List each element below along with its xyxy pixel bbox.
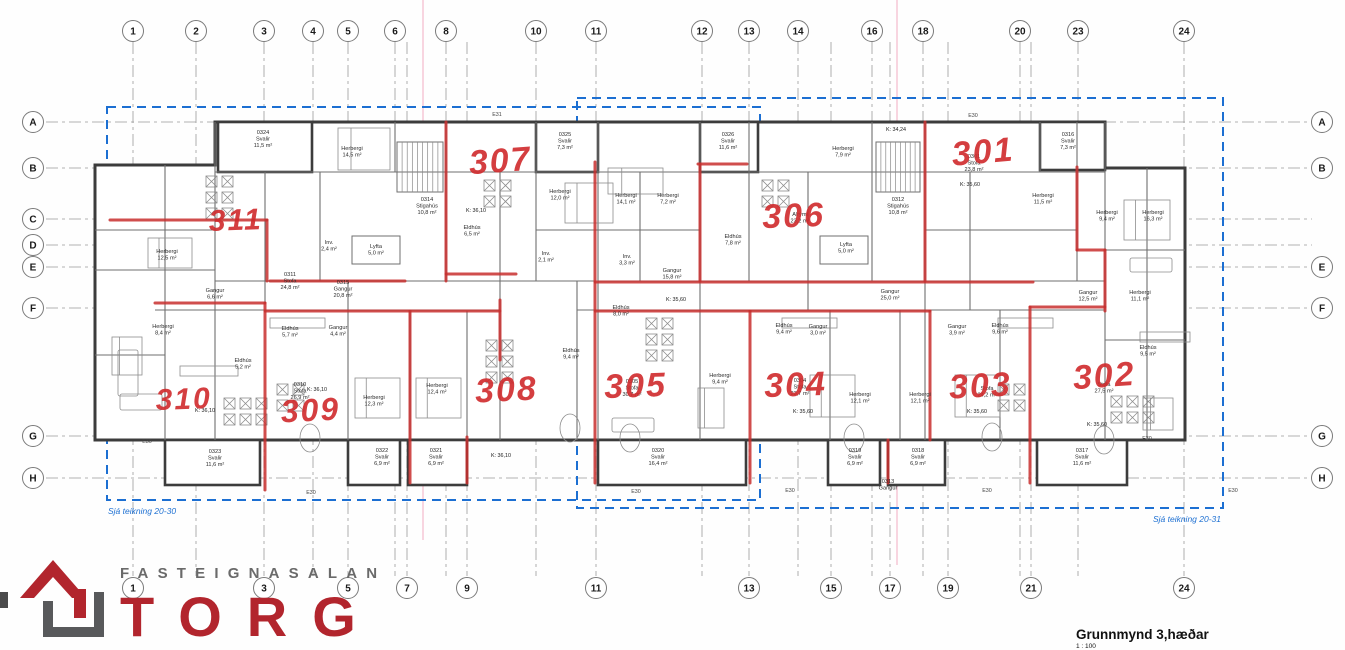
room-label: Eldhús6,5 m² xyxy=(463,225,480,237)
element-mark: E30 xyxy=(306,490,316,496)
grid-bubble-top-8: 8 xyxy=(443,26,449,37)
room-label: Herbergi8,4 m² xyxy=(152,324,173,336)
grid-bubble-bottom-9: 9 xyxy=(464,583,470,594)
grid-bubble-top-11: 11 xyxy=(591,26,602,37)
room-label: Herbergi12,3 m² xyxy=(363,395,384,407)
apartment-number-301: 301 xyxy=(950,130,1016,173)
grid-bubble-right-G: G xyxy=(1318,431,1326,442)
room-label: Eldhús9,4 m² xyxy=(775,323,792,335)
room-label: 0319Svalir6,9 m² xyxy=(847,448,863,467)
torg-logo: FASTEIGNASALAN TORG xyxy=(0,560,386,648)
apartment-number-310: 310 xyxy=(155,382,212,417)
grid-bubble-bottom-7: 7 xyxy=(404,583,410,594)
grid-bubble-top-24: 24 xyxy=(1178,26,1190,37)
grid-bubble-top-5: 5 xyxy=(345,26,351,37)
grid-bubble-bottom-19: 19 xyxy=(942,583,954,594)
grid-bubble-top-4: 4 xyxy=(310,26,316,37)
grid-bubble-right-E: E xyxy=(1319,262,1326,273)
level-mark: K: 35,60 xyxy=(967,409,987,415)
grid-bubble-left-E: E xyxy=(30,262,37,273)
logo-house-wall-red xyxy=(74,589,86,618)
balcony-bottom xyxy=(598,440,746,485)
grid-bubble-left-A: A xyxy=(29,117,36,128)
room-label: 0318Svalir6,9 m² xyxy=(910,448,926,467)
room-label: Eldhús9,5 m² xyxy=(1139,345,1156,357)
room-label: Gangur25,0 m² xyxy=(881,289,900,301)
grid-bubble-right-A: A xyxy=(1318,117,1325,128)
logo-text-torg: TORG xyxy=(120,585,381,648)
drawing-scale: 1 : 100 xyxy=(1076,643,1096,650)
element-mark: E30 xyxy=(631,489,641,495)
room-label: 0322Svalir6,9 m² xyxy=(374,448,390,467)
apartment-number-304: 304 xyxy=(764,365,828,405)
grid-bubble-top-13: 13 xyxy=(743,26,755,37)
grid-bubble-left-H: H xyxy=(29,473,36,484)
logo-house-base-icon xyxy=(43,592,104,637)
room-label: Gangur12,5 m² xyxy=(1079,290,1098,302)
room-label: Herbergi12,1 m² xyxy=(909,392,930,404)
room-label: Herbergi12,4 m² xyxy=(426,383,447,395)
grid-bubble-top-14: 14 xyxy=(792,26,804,37)
element-mark: E30 xyxy=(1142,436,1152,442)
grid-bubble-bottom-24: 24 xyxy=(1178,583,1190,594)
grid-bubble-bottom-15: 15 xyxy=(825,583,837,594)
room-label: Gangur3,9 m² xyxy=(948,324,967,336)
level-mark: K: 35,60 xyxy=(666,297,686,303)
floor-plan-page: 0324Svalir11,5 m²Herbergi14,5 m²0325Sval… xyxy=(0,0,1345,650)
logo-text-fasteignasalan: FASTEIGNASALAN xyxy=(120,565,386,582)
grid-bubble-top-3: 3 xyxy=(261,26,267,37)
element-mark: E30 xyxy=(968,113,978,119)
grid-bubble-right-B: B xyxy=(1318,163,1325,174)
level-mark: K: 35,60 xyxy=(793,409,813,415)
element-mark: E30 xyxy=(1228,488,1238,494)
room-label: Herbergi12,5 m² xyxy=(156,249,177,261)
room-label: Eldhús5,2 m² xyxy=(234,358,251,370)
grid-bubble-bottom-21: 21 xyxy=(1025,583,1037,594)
room-label: Eldhús5,7 m² xyxy=(281,326,298,338)
element-mark: E30 xyxy=(142,439,152,445)
apartment-number-307: 307 xyxy=(468,140,533,182)
floor-plan-drawing: 0324Svalir11,5 m²Herbergi14,5 m²0325Sval… xyxy=(0,0,1345,650)
room-label: Gangur3,0 m² xyxy=(809,324,828,336)
grid-bubble-bottom-17: 17 xyxy=(884,583,896,594)
room-label: Eldhús9,6 m² xyxy=(991,323,1008,335)
room-label: Herbergi12,1 m² xyxy=(849,392,870,404)
apartment-number-309: 309 xyxy=(280,390,341,429)
grid-bubble-left-B: B xyxy=(29,163,36,174)
room-label: Herbergi9,4 m² xyxy=(1096,210,1117,222)
apartment-number-302: 302 xyxy=(1072,355,1137,397)
room-label: Gangur15,8 m² xyxy=(663,268,682,280)
room-label: Lyfta5,0 m² xyxy=(368,244,384,256)
room-label: Eldhús7,8 m² xyxy=(724,234,741,246)
grid-bubble-left-F: F xyxy=(30,303,36,314)
grid-bubble-bottom-13: 13 xyxy=(743,583,755,594)
grid-bubble-top-6: 6 xyxy=(392,26,398,37)
grid-bubble-left-G: G xyxy=(29,431,37,442)
grid-bubble-top-1: 1 xyxy=(130,26,136,37)
reference-note-right: Sjá teikning 20-31 xyxy=(1153,514,1221,524)
logo-edge-mark xyxy=(0,592,8,608)
level-mark: K: 35,60 xyxy=(1087,422,1107,428)
grid-bubble-top-16: 16 xyxy=(866,26,878,37)
grid-bubble-top-23: 23 xyxy=(1072,26,1084,37)
room-label: Herbergi12,0 m² xyxy=(549,189,570,201)
room-label: Lyfta5,0 m² xyxy=(838,242,854,254)
grid-bubble-right-F: F xyxy=(1319,303,1325,314)
element-mark: E31 xyxy=(492,112,502,118)
room-label: Herbergi7,2 m² xyxy=(657,193,678,205)
apartment-number-305: 305 xyxy=(604,366,668,406)
grid-bubble-left-D: D xyxy=(29,240,36,251)
grid-bubble-top-18: 18 xyxy=(917,26,929,37)
room-label: Gangur4,4 m² xyxy=(329,325,348,337)
room-label: Eldhús9,4 m² xyxy=(562,348,579,360)
grid-bubble-top-12: 12 xyxy=(696,26,708,37)
room-label: Herbergi14,1 m² xyxy=(615,193,636,205)
room-label: 0316Svalir7,3 m² xyxy=(1060,132,1076,151)
apartment-number-311: 311 xyxy=(208,203,263,238)
level-mark: K: 36,10 xyxy=(466,208,486,214)
level-mark: K: 35,60 xyxy=(960,182,980,188)
reference-note-left: Sjá teikning 20-30 xyxy=(108,506,176,516)
room-label: Herbergi11,5 m² xyxy=(1032,193,1053,205)
apartment-number-303: 303 xyxy=(948,365,1013,406)
room-label: Herbergi9,4 m² xyxy=(709,373,730,385)
room-label: Herbergi14,5 m² xyxy=(341,146,362,158)
grid-bubble-top-2: 2 xyxy=(193,26,199,37)
drawing-title: Grunnmynd 3,hæðar xyxy=(1076,627,1210,642)
room-label: Herbergi16,3 m² xyxy=(1142,210,1163,222)
room-label: 0325Svalir7,3 m² xyxy=(557,132,573,151)
grid-bubble-bottom-11: 11 xyxy=(591,583,602,594)
room-label: Gangur6,6 m² xyxy=(206,288,225,300)
element-mark: E30 xyxy=(785,488,795,494)
apartment-number-308: 308 xyxy=(474,369,539,410)
grid-bubble-left-C: C xyxy=(29,214,36,225)
grid-bubble-right-H: H xyxy=(1318,473,1325,484)
apartment-number-306: 306 xyxy=(762,196,826,236)
title-block: Grunnmynd 3,hæðar 1 : 100 xyxy=(1076,627,1210,650)
room-label: Herbergi7,9 m² xyxy=(832,146,853,158)
level-mark: K: 34,24 xyxy=(886,127,906,133)
element-mark: E30 xyxy=(982,488,992,494)
room-label: Herbergi11,1 m² xyxy=(1129,290,1150,302)
room-label: 0321Svalir6,9 m² xyxy=(428,448,444,467)
grid-bubble-top-10: 10 xyxy=(530,26,542,37)
level-mark: K: 36,10 xyxy=(491,453,511,459)
grid-bubble-top-20: 20 xyxy=(1014,26,1026,37)
room-label: Eldhús8,0 m² xyxy=(612,305,629,317)
